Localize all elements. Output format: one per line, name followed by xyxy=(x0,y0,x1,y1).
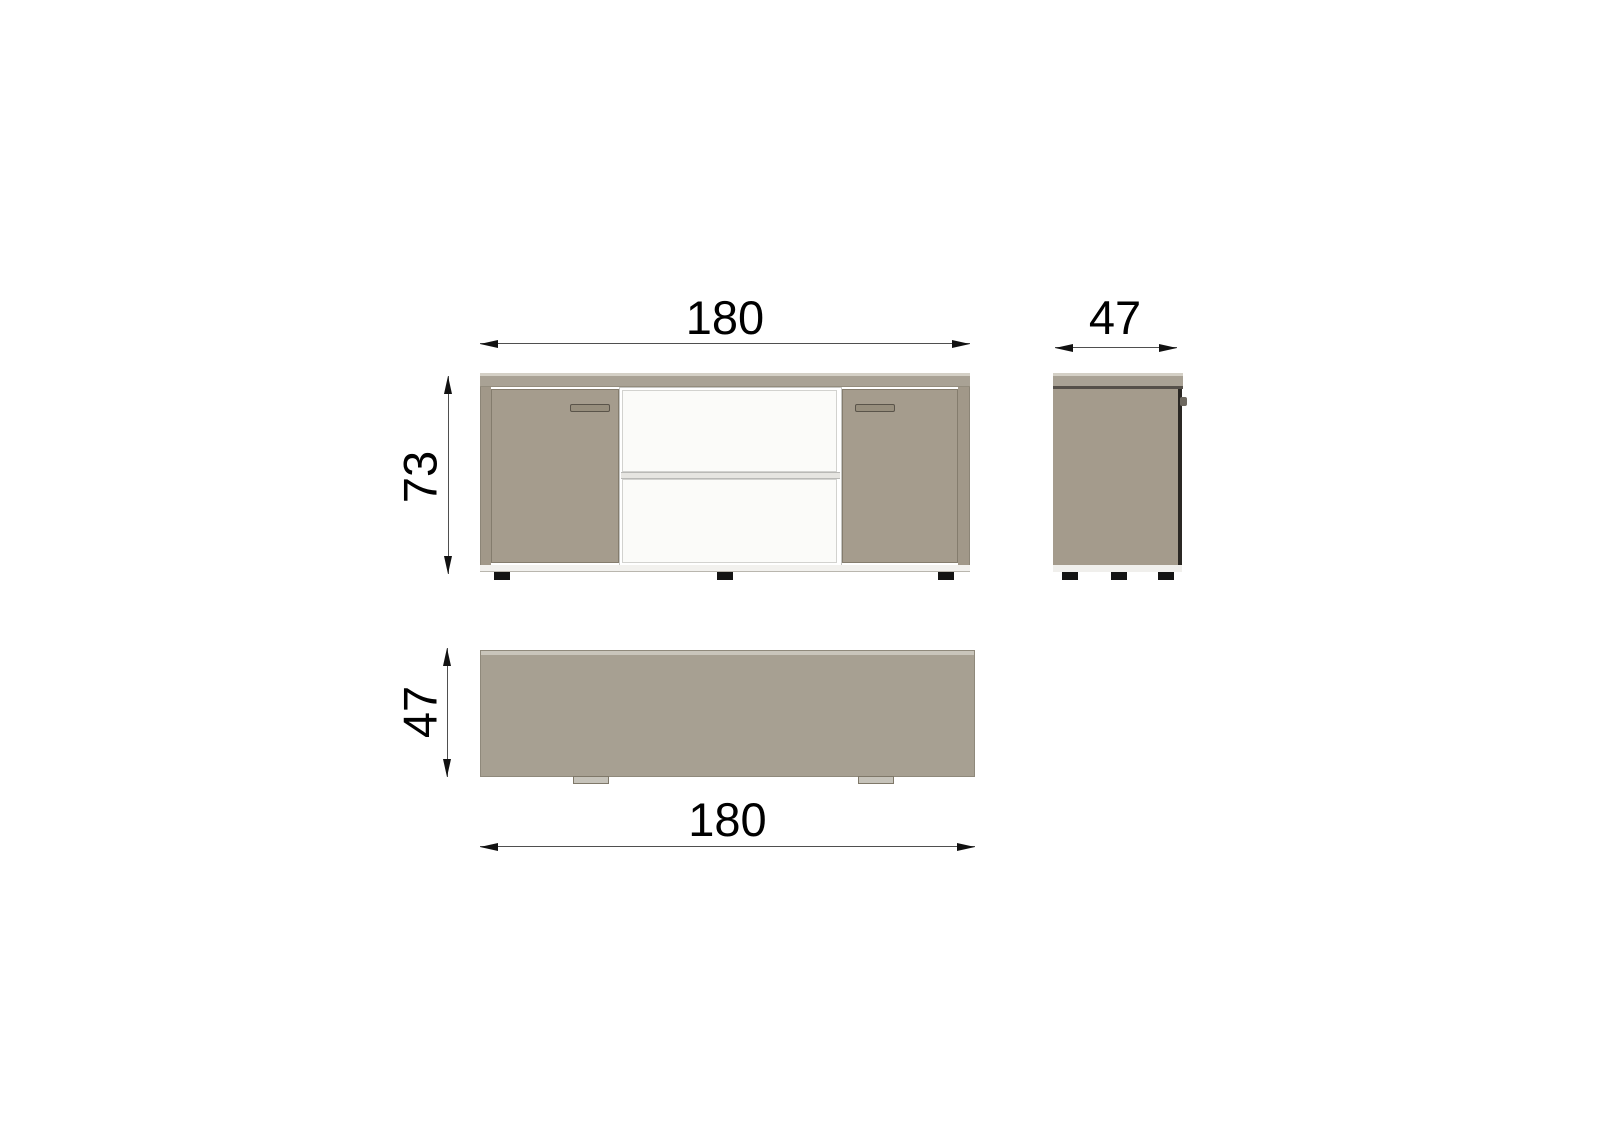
side-view xyxy=(1053,373,1183,572)
side-bottom-strip xyxy=(1053,565,1182,572)
right-door-handle xyxy=(855,404,895,412)
shelf-divider xyxy=(621,472,840,479)
side-panel-body xyxy=(1053,389,1180,565)
top-width-label: 180 xyxy=(480,795,975,844)
arrowhead-right-icon xyxy=(1159,344,1177,352)
arrowhead-left-icon xyxy=(1055,344,1073,352)
front-bottom-strip xyxy=(480,565,970,572)
dimension-drawing: 180 73 47 47 xyxy=(0,0,1600,1133)
top-depth-label: 47 xyxy=(393,686,448,738)
front-height-label: 73 xyxy=(393,451,448,503)
dimension-line xyxy=(447,648,448,777)
arrowhead-up-icon xyxy=(444,376,452,394)
arrowhead-down-icon xyxy=(443,759,451,777)
front-right-door xyxy=(842,389,958,563)
top-back-edge-highlight xyxy=(481,651,974,655)
lower-shelf-compartment xyxy=(622,479,837,563)
side-top-board xyxy=(1053,373,1183,387)
arrowhead-left-icon xyxy=(480,843,498,851)
arrowhead-down-icon xyxy=(444,556,452,574)
arrowhead-left-icon xyxy=(480,340,498,348)
top-view xyxy=(480,650,975,777)
arrowhead-right-icon xyxy=(957,843,975,851)
left-door-handle xyxy=(570,404,610,412)
foot xyxy=(938,572,954,580)
front-open-shelf-section xyxy=(619,387,842,568)
front-top-board xyxy=(480,373,970,387)
front-left-door xyxy=(491,389,619,563)
front-left-side-panel xyxy=(480,387,491,565)
front-view xyxy=(480,373,970,572)
top-view-handle-tab xyxy=(858,776,894,784)
side-handle-knob xyxy=(1180,397,1187,406)
front-right-side-panel xyxy=(958,387,970,565)
foot xyxy=(1111,572,1127,580)
upper-shelf-compartment xyxy=(622,390,837,472)
foot xyxy=(494,572,510,580)
dimension-line xyxy=(480,343,970,344)
foot xyxy=(1158,572,1174,580)
dimension-line xyxy=(480,846,975,847)
top-view-handle-tab xyxy=(573,776,609,784)
arrowhead-right-icon xyxy=(952,340,970,348)
dimension-line xyxy=(448,376,449,574)
foot xyxy=(717,572,733,580)
arrowhead-up-icon xyxy=(443,648,451,666)
foot xyxy=(1062,572,1078,580)
side-door-front-edge xyxy=(1178,389,1182,565)
front-width-label: 180 xyxy=(480,293,970,342)
side-depth-label: 47 xyxy=(1053,293,1177,342)
